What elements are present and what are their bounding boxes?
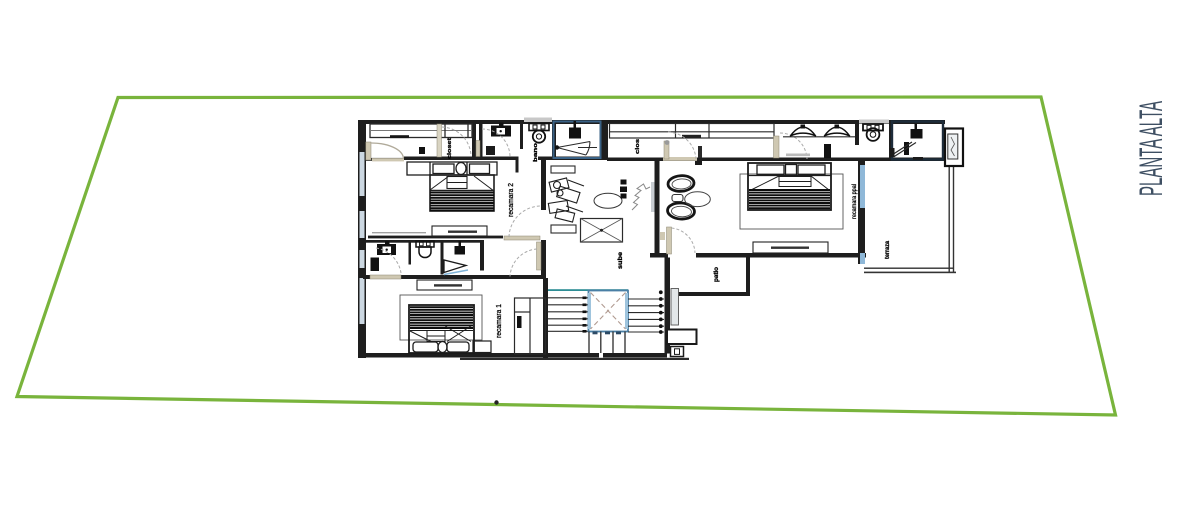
svg-text:sube: sube — [618, 251, 624, 269]
svg-text:PLANTA ALTA: PLANTA ALTA — [1133, 101, 1169, 196]
svg-text:recamara ppal: recamara ppal — [851, 184, 858, 219]
svg-text:closet: closet — [447, 138, 453, 159]
svg-text:recamara 2: recamara 2 — [508, 183, 515, 217]
svg-text:patio: patio — [713, 267, 720, 282]
svg-text:terraza: terraza — [884, 241, 891, 259]
svg-text:clos: clos — [635, 139, 641, 154]
svg-text:recamara 1: recamara 1 — [496, 304, 503, 338]
svg-text:bano: bano — [533, 142, 539, 162]
